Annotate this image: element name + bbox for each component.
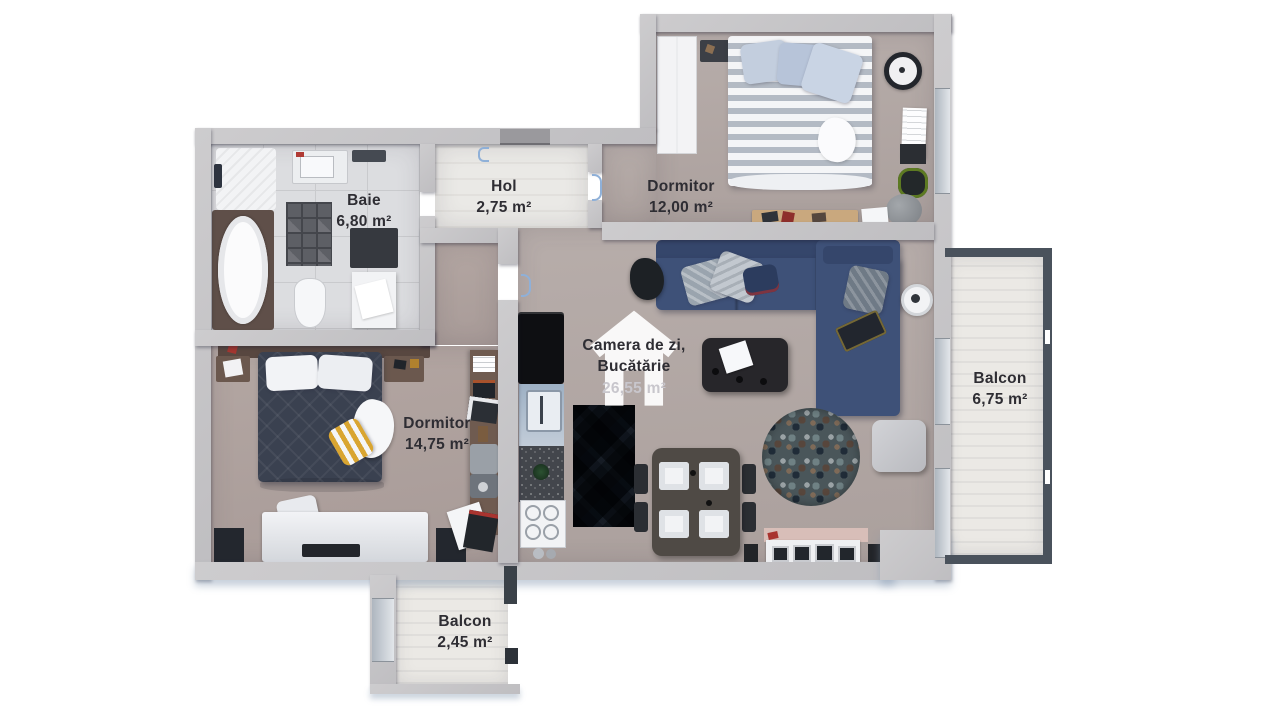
faucet: [540, 396, 543, 424]
printer-dial: [478, 482, 488, 492]
shelf-item: [478, 426, 488, 442]
room-area: 14,75 m²: [403, 434, 470, 455]
burner: [525, 524, 541, 540]
window: [935, 338, 950, 425]
wall: [640, 14, 656, 130]
sink-basin: [300, 156, 334, 178]
cushion: [742, 263, 780, 296]
wall: [640, 14, 952, 32]
balcony-corner-post: [505, 648, 518, 664]
wall: [420, 144, 435, 192]
nightstand-item: [410, 359, 419, 368]
room-label-camera-de-zi: Camera de zi, Bucătărie 26,55 m²: [582, 335, 685, 399]
dining-chair: [742, 502, 756, 532]
balcony-railing: [945, 555, 1052, 564]
vacuum-center: [911, 294, 920, 303]
toilet: [294, 278, 326, 328]
room-area: 2,75 m²: [476, 197, 531, 218]
dining-chair: [634, 464, 648, 494]
storage-box: [900, 144, 926, 164]
round-rug: [762, 408, 860, 506]
wall: [195, 128, 211, 580]
geometric-rug: [573, 405, 635, 527]
chaise-cushion: [823, 246, 893, 264]
wall: [588, 200, 602, 228]
kitchen-jar: [546, 549, 556, 559]
plant: [630, 258, 664, 300]
monitor: [302, 544, 360, 557]
corridor-floor: [435, 243, 498, 345]
door-swing-mark: [521, 274, 531, 297]
room-name: Baie: [336, 190, 391, 211]
bed-shadow: [260, 478, 384, 492]
place-setting: [699, 510, 729, 538]
room-name: Bucătărie: [582, 356, 685, 377]
vanity-accent: [296, 152, 304, 157]
window: [372, 598, 394, 662]
shower: [216, 148, 276, 210]
room-label-dormitor-14: Dormitor 14,75 m²: [403, 413, 470, 456]
balcony-railing: [945, 248, 1052, 257]
wall: [195, 330, 435, 346]
counter-plant: [533, 464, 549, 480]
room-name: Balcon: [972, 368, 1027, 389]
floor-plan-canvas: Baie 6,80 m² Hol 2,75 m² Dormitor 12,00 …: [0, 0, 1270, 714]
door-swing-mark: [592, 174, 602, 201]
room-name: Dormitor: [647, 176, 714, 197]
wall: [602, 222, 934, 240]
table-item: [706, 500, 712, 506]
printer: [470, 444, 498, 474]
wall: [498, 300, 518, 563]
table-item: [690, 470, 696, 476]
bed-skirt: [730, 174, 872, 190]
shelf-tablet: [466, 396, 499, 424]
wall: [588, 144, 602, 172]
window: [935, 468, 950, 558]
place-setting: [659, 510, 689, 538]
burner: [543, 524, 559, 540]
room-name: Dormitor: [403, 413, 470, 434]
burner: [525, 505, 541, 521]
room-label-balcon-6: Balcon 6,75 m²: [972, 368, 1027, 411]
shower-fixture: [214, 164, 222, 188]
cup: [736, 376, 743, 383]
room-label-baie: Baie 6,80 m²: [336, 190, 391, 233]
room-name: Hol: [476, 176, 531, 197]
bath-cabinet: [350, 228, 398, 268]
towel-bar: [352, 150, 386, 162]
photo-frame: [793, 545, 811, 562]
room-name: Balcon: [437, 611, 492, 632]
wall: [195, 562, 895, 580]
room-name: Camera de zi,: [582, 335, 685, 356]
speaker: [744, 544, 758, 562]
room-label-hol: Hol 2,75 m²: [476, 176, 531, 219]
book-on-nightstand: [223, 359, 244, 378]
kitchen-sink: [526, 390, 562, 432]
dining-chair: [742, 464, 756, 494]
room-area: 6,80 m²: [336, 211, 391, 232]
shelf-books: [473, 380, 495, 398]
room-label-dormitor-12: Dormitor 12,00 m²: [647, 176, 714, 219]
room-area: 12,00 m²: [647, 197, 714, 218]
dining-chair: [634, 502, 648, 532]
pillow: [265, 355, 319, 392]
window-jamb: [214, 528, 244, 562]
room-label-balcon-2: Balcon 2,45 m²: [437, 611, 492, 654]
pillow: [317, 354, 373, 392]
wardrobe: [657, 36, 697, 154]
room-area: 2,45 m²: [437, 632, 492, 653]
nightstand-item: [393, 359, 406, 370]
door-swing-mark: [478, 147, 489, 162]
wall: [420, 228, 498, 243]
window: [935, 88, 950, 194]
cup: [760, 378, 767, 385]
room-area: 26,55 m²: [582, 378, 685, 399]
fridge: [518, 312, 564, 384]
balcony-railing: [1043, 248, 1052, 564]
photo-frame: [815, 544, 834, 562]
clock-center: [899, 67, 905, 73]
railing-notch: [1045, 470, 1050, 484]
burner: [543, 505, 559, 521]
place-setting: [699, 462, 729, 490]
place-setting: [659, 462, 689, 490]
shelf-books: [473, 356, 495, 372]
photo-frame: [772, 546, 789, 562]
balcony-door-jamb: [504, 566, 517, 604]
room-area: 6,75 m²: [972, 389, 1027, 410]
bathtub: [218, 216, 268, 324]
photo-frame: [838, 546, 856, 562]
wall: [498, 228, 518, 264]
railing-notch: [1045, 330, 1050, 344]
entrance-door: [500, 129, 550, 145]
ottoman: [872, 420, 926, 472]
wall: [370, 684, 520, 694]
kitchen-jar: [533, 548, 544, 559]
bath-mat: [286, 202, 332, 266]
wall: [195, 128, 656, 144]
cup: [712, 368, 719, 375]
